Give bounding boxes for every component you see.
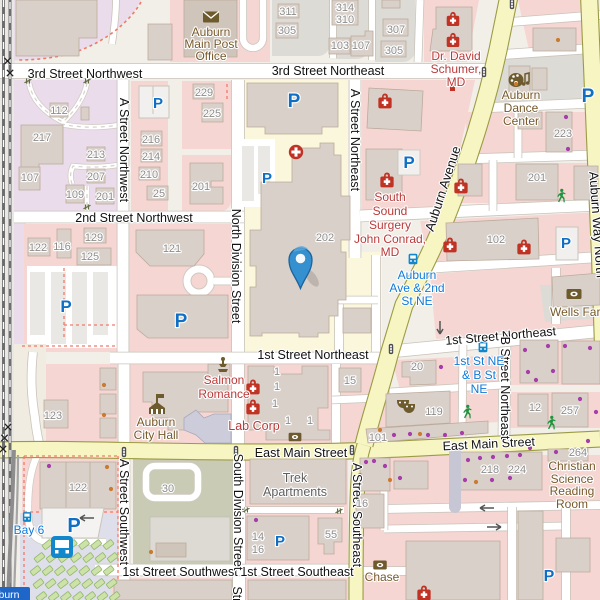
svg-text:307: 307 [387,24,405,36]
svg-text:201: 201 [528,172,546,184]
svg-text:119: 119 [425,406,443,418]
svg-text:South: South [374,190,405,204]
svg-text:125: 125 [81,251,99,263]
svg-text:P: P [403,153,414,172]
svg-text:Bay 6: Bay 6 [14,523,45,537]
svg-text:1: 1 [272,398,278,410]
svg-text:109: 109 [66,189,84,201]
svg-text:1st Street Northeast: 1st Street Northeast [257,348,369,362]
svg-text:P: P [544,568,555,585]
svg-text:burn: burn [0,589,20,600]
svg-text:16: 16 [252,544,264,556]
svg-text:55: 55 [325,529,337,541]
svg-text:Street: Street [230,586,244,600]
svg-text:311: 311 [279,6,297,18]
svg-text:1: 1 [274,366,280,378]
svg-text:1st St NE: 1st St NE [454,354,505,368]
svg-text:A Street Northeast: A Street Northeast [348,89,362,192]
svg-text:123: 123 [44,410,62,422]
svg-text:1st Street Southeast: 1st Street Southeast [240,565,354,579]
svg-text:Center: Center [503,114,539,128]
svg-text:207: 207 [87,171,105,183]
svg-text:P: P [175,311,188,332]
svg-text:Romance: Romance [198,387,250,401]
svg-text:16: 16 [356,498,368,510]
svg-text:14: 14 [252,531,264,543]
svg-text:A Street Northwest: A Street Northwest [117,98,131,203]
svg-text:1st Street Southwest: 1st Street Southwest [122,565,238,579]
svg-text:Lab Corp: Lab Corp [228,419,279,433]
svg-text:305: 305 [385,45,403,57]
svg-text:217: 217 [33,132,51,144]
svg-text:103: 103 [331,40,349,52]
svg-text:Auburn: Auburn [398,268,437,282]
svg-text:John Conrad,: John Conrad, [354,232,426,246]
svg-text:Wells Fargo: Wells Fargo [550,305,600,319]
svg-text:213: 213 [87,149,105,161]
svg-text:P: P [67,515,80,537]
svg-text:216: 216 [142,134,160,146]
svg-text:Dance: Dance [504,101,539,115]
svg-text:1: 1 [274,381,280,393]
svg-text:122: 122 [69,482,87,494]
svg-text:Trek: Trek [283,471,308,485]
svg-text:112: 112 [50,105,68,117]
svg-text:City Hall: City Hall [134,428,179,442]
svg-text:Office: Office [195,49,226,63]
svg-text:Schumer,: Schumer, [431,62,482,76]
svg-text:257: 257 [561,405,579,417]
svg-text:310: 310 [336,14,354,26]
svg-text:107: 107 [352,40,370,52]
svg-text:229: 229 [195,87,213,99]
svg-text:1: 1 [285,415,291,427]
svg-text:101: 101 [369,432,387,444]
svg-text:25: 25 [153,188,165,200]
svg-text:P: P [561,235,571,252]
svg-text:P: P [275,533,285,550]
svg-text:107: 107 [21,172,39,184]
svg-text:210: 210 [140,169,158,181]
svg-text:3rd Street Northwest: 3rd Street Northwest [28,67,143,81]
svg-text:B Street Northeast: B Street Northeast [498,337,512,440]
svg-text:NE: NE [471,382,488,396]
svg-text:P: P [153,95,163,112]
svg-text:2nd Street Northwest: 2nd Street Northwest [75,211,193,225]
svg-text:12: 12 [529,402,541,414]
svg-text:St NE: St NE [401,294,432,308]
svg-text:201: 201 [96,191,114,203]
svg-text:121: 121 [163,243,181,255]
svg-text:20: 20 [411,361,423,373]
svg-text:214: 214 [142,151,160,163]
svg-text:Ave & 2nd: Ave & 2nd [389,281,444,295]
svg-text:264: 264 [569,447,587,459]
svg-text:A Street Southwest: A Street Southwest [117,459,131,566]
svg-text:3rd Street Northeast: 3rd Street Northeast [272,64,385,78]
svg-text:Auburn: Auburn [502,88,541,102]
svg-text:15: 15 [344,375,356,387]
svg-text:Salmon: Salmon [204,373,245,387]
svg-text:Chase: Chase [365,570,400,584]
svg-text:MD: MD [447,75,466,89]
svg-text:Reading: Reading [550,484,595,498]
svg-text:116: 116 [53,241,71,253]
svg-text:South Division Street: South Division Street [231,454,245,571]
svg-text:1: 1 [307,415,313,427]
svg-text:P: P [582,86,595,107]
svg-text:Room: Room [556,497,588,511]
svg-text:223: 223 [554,128,572,140]
svg-text:Surgery: Surgery [369,218,411,232]
svg-text:A Street Southeast: A Street Southeast [350,463,364,568]
svg-text:122: 122 [29,242,47,254]
svg-text:218: 218 [481,464,499,476]
svg-text:202: 202 [316,232,334,244]
svg-text:& B St: & B St [462,368,497,382]
svg-text:East Main Street: East Main Street [255,446,348,460]
svg-text:Sound: Sound [373,204,408,218]
svg-text:P: P [60,297,71,316]
svg-text:102: 102 [487,234,505,246]
svg-text:P: P [288,91,301,112]
svg-text:30: 30 [162,483,174,495]
svg-text:Dr. David: Dr. David [431,49,480,63]
svg-text:Auburn: Auburn [137,415,176,429]
svg-text:201: 201 [192,181,210,193]
svg-text:Christian: Christian [548,459,595,473]
svg-text:314: 314 [336,2,354,14]
svg-text:129: 129 [85,232,103,244]
svg-text:MD: MD [381,245,400,259]
svg-text:P: P [262,170,272,187]
svg-text:225: 225 [203,108,221,120]
svg-text:224: 224 [508,464,526,476]
svg-text:North Division Street: North Division Street [229,209,243,324]
svg-text:Apartments: Apartments [263,485,327,499]
svg-text:305: 305 [278,25,296,37]
